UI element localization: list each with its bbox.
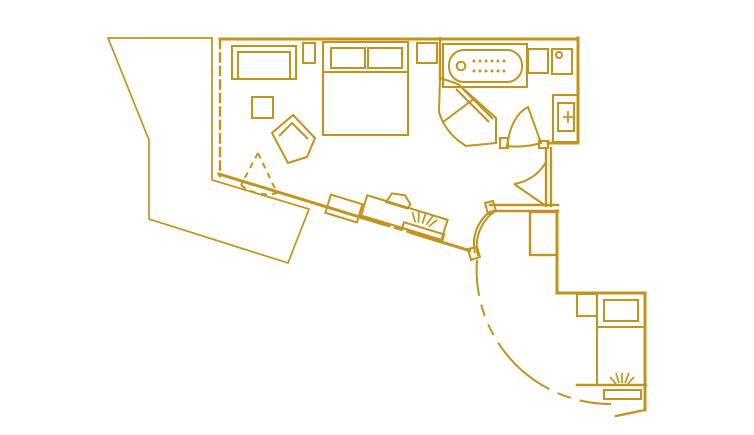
- entry-mat: [604, 390, 641, 399]
- double-bed: [323, 42, 408, 135]
- bathroom-door: [500, 107, 548, 148]
- large-door-swing-dashed: [477, 260, 611, 404]
- light-rays-entry: [610, 373, 634, 384]
- toilet: [552, 49, 572, 74]
- floor-plan-page: [0, 0, 754, 435]
- tub-faucet: [457, 62, 466, 71]
- pillow-right: [368, 48, 402, 68]
- lounge-chair: [272, 115, 315, 163]
- corner-shower: [439, 78, 496, 146]
- tub-jets: [473, 60, 506, 73]
- desk: [361, 195, 447, 240]
- deck-hatching: [108, 38, 309, 263]
- work-area: [217, 141, 479, 256]
- wc-door: [514, 148, 551, 206]
- balcony-door-swing-dashed: [241, 153, 277, 194]
- nightstand-right: [417, 43, 437, 63]
- sofa: [232, 46, 296, 79]
- desk-chair: [386, 191, 412, 209]
- wall-entry-corner: [616, 410, 645, 416]
- side-table: [252, 97, 273, 118]
- wall-diagonal-b: [411, 233, 469, 251]
- entry-nightstand: [577, 294, 597, 316]
- entry-pillow: [604, 300, 638, 321]
- bathtub-with-jets: [443, 44, 527, 87]
- tall-cabinet-with-cross: [553, 95, 578, 142]
- nightstand-left: [303, 43, 315, 63]
- single-bed: [597, 293, 645, 385]
- wall-column: [530, 212, 557, 255]
- sink: [528, 49, 548, 73]
- balcony-deck: [108, 38, 309, 263]
- pillow-left: [331, 48, 365, 68]
- floor-plan: [0, 0, 754, 435]
